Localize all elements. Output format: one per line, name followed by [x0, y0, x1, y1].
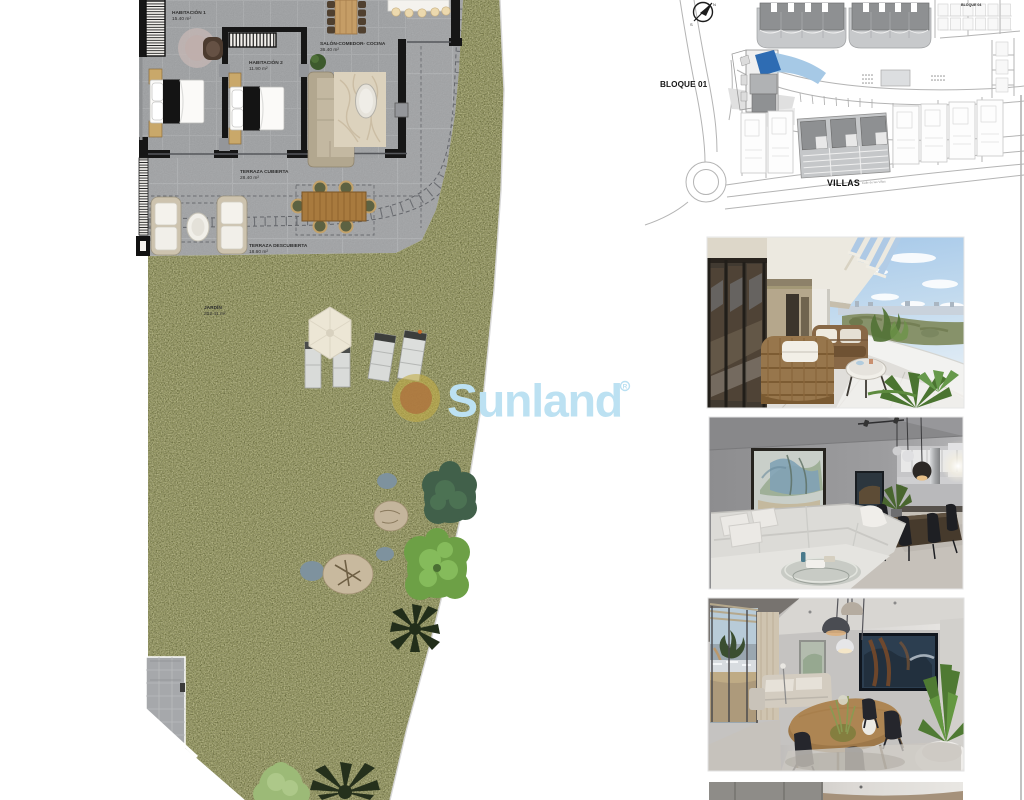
svg-text:28.40 m²: 28.40 m²	[240, 175, 259, 181]
svg-text:R: R	[623, 384, 628, 391]
svg-text:VILLAS: VILLAS	[827, 178, 860, 188]
svg-text:BLOQUE 04: BLOQUE 04	[961, 3, 981, 7]
svg-text:202.41 m²: 202.41 m²	[204, 311, 226, 317]
svg-text:TERRAZA DESCUBIERTA: TERRAZA DESCUBIERTA	[249, 243, 308, 249]
svg-text:15.40 m²: 15.40 m²	[172, 16, 191, 22]
svg-text:Calle de las Villas: Calle de las Villas	[862, 179, 886, 185]
svg-text:18.60 m²: 18.60 m²	[249, 249, 268, 255]
svg-text:11.90 m²: 11.90 m²	[249, 66, 268, 72]
svg-text:N: N	[713, 2, 716, 7]
svg-text:36.40 m²: 36.40 m²	[320, 47, 339, 53]
svg-text:TERRAZA CUBIERTA: TERRAZA CUBIERTA	[240, 169, 289, 175]
svg-text:BLOQUE 01: BLOQUE 01	[660, 80, 708, 89]
svg-text:S: S	[690, 22, 693, 27]
svg-text:Sunland: Sunland	[447, 375, 622, 427]
